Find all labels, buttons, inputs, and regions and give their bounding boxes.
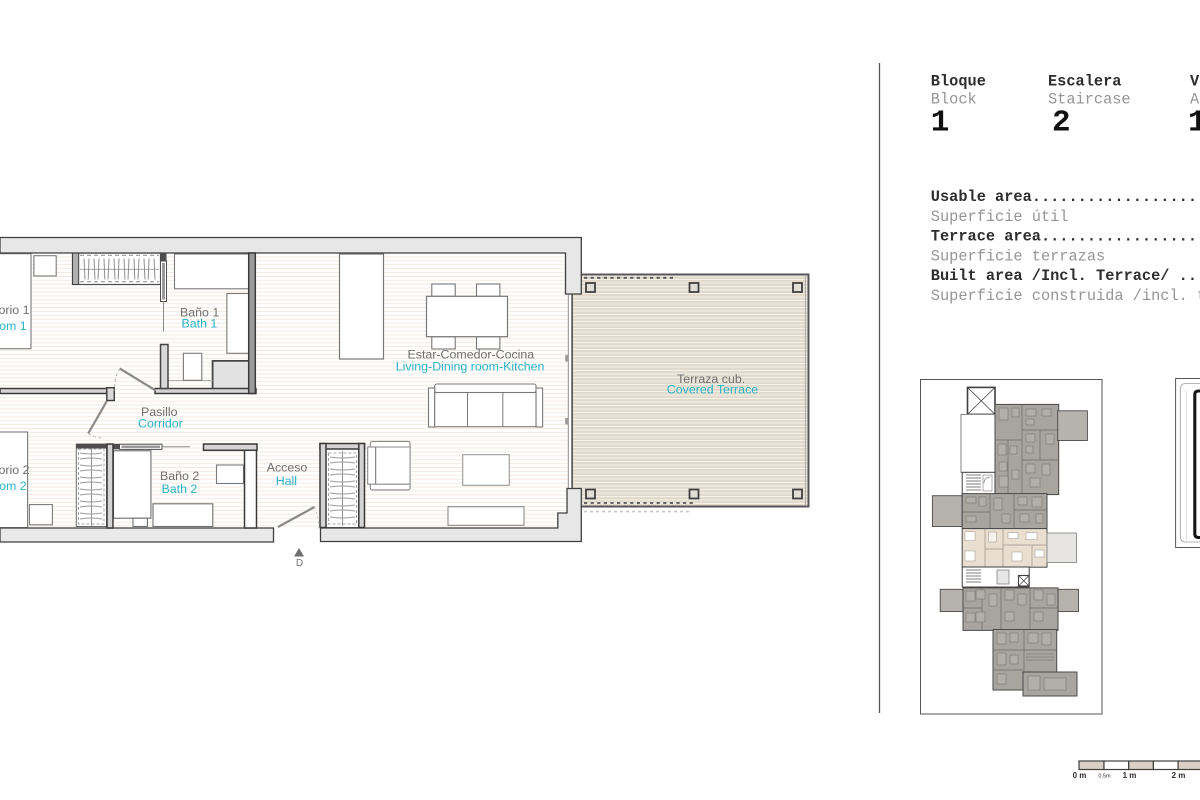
svg-text:Living-Dining room-Kitchen: Living-Dining room-Kitchen [396, 360, 545, 374]
svg-text:Baño 2: Baño 2 [160, 469, 199, 483]
svg-text:Corridor: Corridor [138, 417, 183, 431]
svg-text:1: 1 [1188, 106, 1200, 141]
svg-text:2 m: 2 m [1172, 771, 1186, 780]
svg-text:Built area /Incl. Terrace/ ...: Built area /Incl. Terrace/ ....... [931, 267, 1200, 285]
svg-text:0 m: 0 m [1073, 771, 1087, 780]
svg-text:Vivienda: Vivienda [1190, 73, 1200, 91]
svg-text:Covered Terrace: Covered Terrace [667, 383, 758, 397]
svg-text:Bath 1: Bath 1 [182, 317, 218, 331]
svg-text:Acceso: Acceso [267, 461, 308, 475]
svg-text:0,5m: 0,5m [1098, 774, 1111, 780]
svg-text:Superficie terrazas: Superficie terrazas [931, 247, 1105, 265]
svg-text:Usable area...................: Usable area....................... [931, 188, 1200, 206]
svg-text:Superficie útil: Superficie útil [931, 208, 1069, 226]
svg-text:Bedroom 1: Bedroom 1 [0, 319, 27, 333]
svg-text:Bloque: Bloque [931, 73, 986, 91]
svg-text:Dormitorio 2: Dormitorio 2 [0, 463, 30, 477]
svg-text:D: D [296, 558, 303, 569]
svg-text:Escalera: Escalera [1048, 73, 1121, 91]
svg-text:Bedroom 2: Bedroom 2 [0, 479, 27, 493]
svg-text:Hall: Hall [276, 474, 297, 488]
svg-text:Bath 2: Bath 2 [162, 482, 198, 496]
svg-text:1: 1 [931, 106, 950, 141]
svg-text:1 m: 1 m [1123, 771, 1137, 780]
svg-text:Dormitorio 1: Dormitorio 1 [0, 303, 30, 317]
svg-text:2: 2 [1052, 106, 1071, 141]
svg-text:Terrace area..................: Terrace area...................... [931, 228, 1200, 246]
svg-text:Superficie construida /incl. t: Superficie construida /incl. t [931, 287, 1200, 305]
